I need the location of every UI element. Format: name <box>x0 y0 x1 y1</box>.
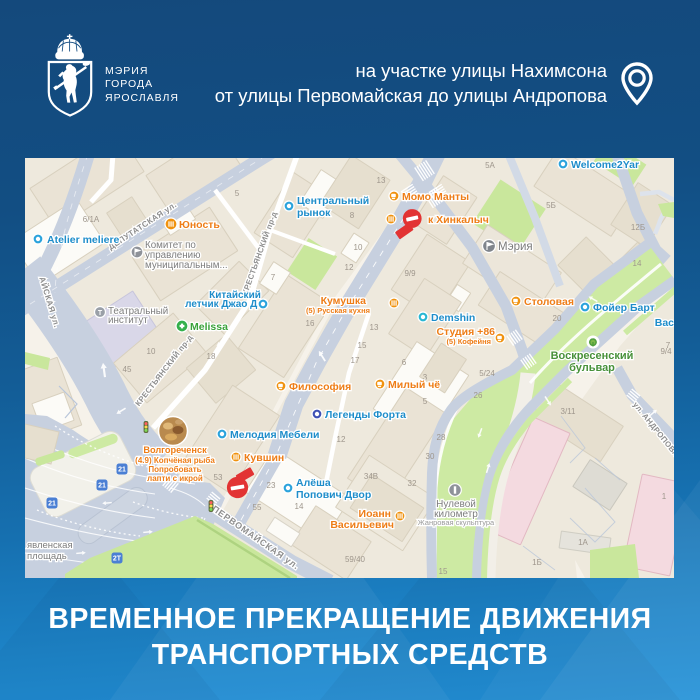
svg-text:14: 14 <box>633 259 642 268</box>
svg-text:бульвар: бульвар <box>569 362 615 374</box>
svg-text:Философия: Философия <box>289 381 351 393</box>
svg-text:2Т: 2Т <box>113 556 122 563</box>
svg-text:1А: 1А <box>578 538 588 547</box>
svg-text:Столовая: Столовая <box>524 296 574 308</box>
svg-text:12: 12 <box>345 263 354 272</box>
svg-text:Воскресенский: Воскресенский <box>551 350 634 362</box>
svg-text:3/11: 3/11 <box>561 407 577 416</box>
svg-text:26: 26 <box>474 391 483 400</box>
svg-text:13: 13 <box>370 323 379 332</box>
svg-text:21: 21 <box>48 501 56 508</box>
svg-text:Atelier meliere: Atelier meliere <box>47 234 120 246</box>
svg-text:5: 5 <box>235 189 240 198</box>
svg-text:12Б: 12Б <box>631 223 645 232</box>
svg-text:6: 6 <box>402 358 407 367</box>
svg-text:13: 13 <box>377 176 386 185</box>
svg-text:16: 16 <box>306 319 315 328</box>
svg-text:Welcome2Yar: Welcome2Yar <box>571 159 639 171</box>
svg-text:к Хинкалыч: к Хинкалыч <box>428 214 489 226</box>
svg-text:21: 21 <box>98 483 106 490</box>
svg-text:20: 20 <box>553 314 562 323</box>
svg-text:1: 1 <box>662 492 667 501</box>
svg-text:Melissa: Melissa <box>190 321 228 333</box>
svg-text:явленская: явленская <box>27 540 73 551</box>
svg-text:Милый чё: Милый чё <box>388 379 440 391</box>
svg-text:23: 23 <box>267 481 276 490</box>
svg-text:Юность: Юность <box>179 219 220 231</box>
svg-text:(5) Кофейня: (5) Кофейня <box>446 337 491 346</box>
svg-text:21: 21 <box>118 467 126 474</box>
svg-text:Мелодия Мебели: Мелодия Мебели <box>230 429 319 441</box>
svg-text:площадь: площадь <box>27 551 67 562</box>
svg-text:Попробовать: Попробовать <box>148 465 201 474</box>
svg-text:1Б: 1Б <box>532 558 542 567</box>
svg-text:Demshin: Demshin <box>431 312 475 324</box>
svg-text:14: 14 <box>295 502 304 511</box>
svg-text:Волгореченск: Волгореченск <box>143 445 207 455</box>
svg-text:Васильевич: Васильевич <box>330 519 394 531</box>
svg-text:55: 55 <box>253 503 262 512</box>
svg-text:Жанровая скульптура: Жанровая скульптура <box>418 518 495 527</box>
svg-text:муниципальным...: муниципальным... <box>145 260 228 271</box>
svg-text:лапти с икрой: лапти с икрой <box>147 474 203 483</box>
svg-text:18: 18 <box>207 352 216 361</box>
svg-text:32: 32 <box>408 479 417 488</box>
svg-text:(4.9) Копчёная рыба: (4.9) Копчёная рыба <box>135 456 215 465</box>
svg-text:5А: 5А <box>485 161 495 170</box>
svg-text:45: 45 <box>123 365 132 374</box>
svg-text:9/9: 9/9 <box>404 269 416 278</box>
svg-text:34В: 34В <box>364 472 378 481</box>
svg-text:12: 12 <box>337 435 346 444</box>
svg-text:5: 5 <box>423 397 428 406</box>
svg-text:5Б: 5Б <box>546 201 556 210</box>
svg-text:17: 17 <box>351 356 360 365</box>
svg-text:Момо Манты: Момо Манты <box>402 191 469 203</box>
svg-text:(5) Русская кухня: (5) Русская кухня <box>306 306 370 315</box>
svg-text:Фойер Барт: Фойер Барт <box>593 302 655 314</box>
svg-text:Кувшин: Кувшин <box>244 452 284 464</box>
svg-text:летчик Джао Да: летчик Джао Да <box>185 299 263 310</box>
svg-text:28: 28 <box>437 433 446 442</box>
svg-text:Мэрия: Мэрия <box>498 241 533 253</box>
svg-text:институт: институт <box>108 315 148 326</box>
svg-text:7: 7 <box>666 341 671 350</box>
svg-text:10: 10 <box>354 243 363 252</box>
svg-text:7: 7 <box>271 273 276 282</box>
svg-text:8: 8 <box>350 211 355 220</box>
svg-text:Алёша: Алёша <box>296 477 331 489</box>
svg-text:30: 30 <box>426 452 435 461</box>
svg-text:Т: Т <box>98 310 103 317</box>
svg-text:Легенды Форта: Легенды Форта <box>325 409 406 421</box>
svg-text:5/24: 5/24 <box>479 369 495 378</box>
svg-text:10: 10 <box>147 347 156 356</box>
svg-text:6/1A: 6/1A <box>83 215 100 224</box>
svg-text:15: 15 <box>358 341 367 350</box>
svg-text:Центральный: Центральный <box>297 195 369 207</box>
svg-text:15: 15 <box>439 567 448 576</box>
svg-text:Попович Двор: Попович Двор <box>296 489 371 501</box>
svg-text:53: 53 <box>214 473 223 482</box>
svg-text:59/40: 59/40 <box>345 555 366 564</box>
svg-text:рынок: рынок <box>297 207 331 219</box>
svg-text:Вас: Вас <box>655 317 674 329</box>
